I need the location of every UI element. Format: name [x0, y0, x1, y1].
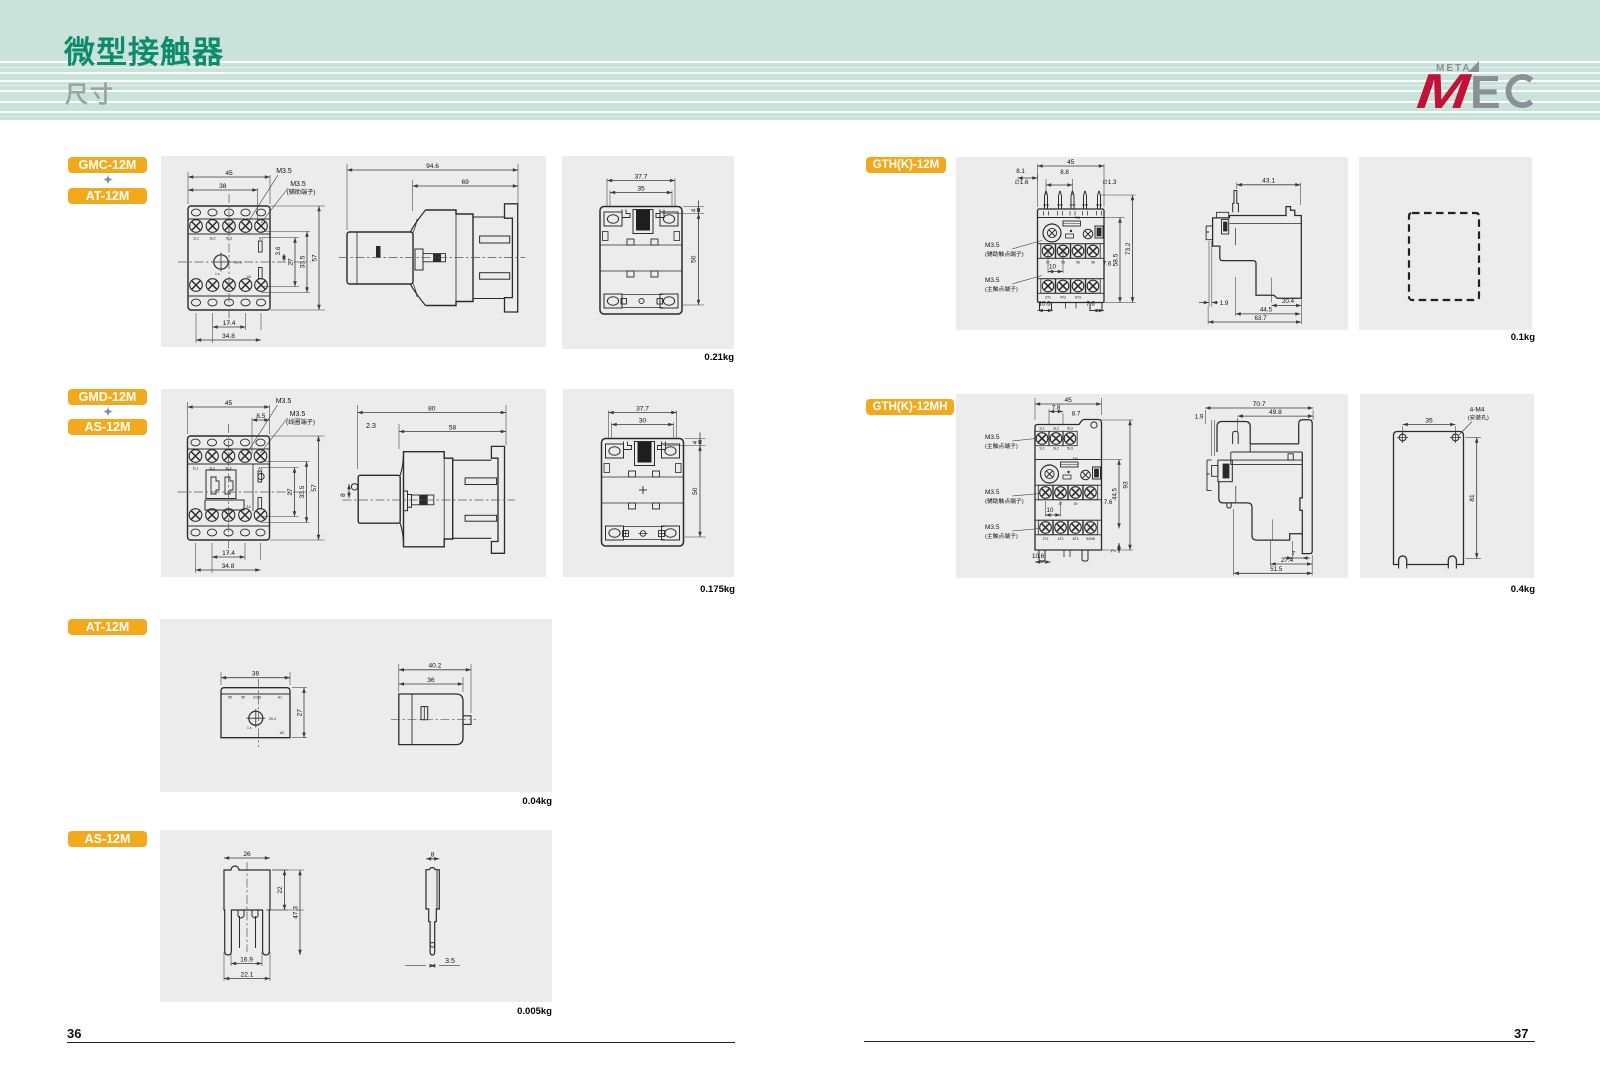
svg-text:45: 45	[1067, 159, 1075, 166]
svg-text:1L1: 1L1	[193, 237, 199, 241]
svg-text:10: 10	[1047, 507, 1054, 514]
svg-text:49.8: 49.8	[1269, 409, 1282, 416]
svg-text:6T3: 6T3	[1075, 296, 1081, 300]
svg-text:37.7: 37.7	[636, 405, 649, 412]
svg-text:TM: TM	[1075, 216, 1080, 220]
svg-text:20.4: 20.4	[1282, 298, 1295, 305]
svg-text:98: 98	[1091, 261, 1095, 265]
svg-text:(主触点端子): (主触点端子)	[985, 442, 1018, 450]
svg-text:M3-6: M3-6	[234, 261, 242, 265]
svg-text:M3.5: M3.5	[290, 181, 306, 188]
svg-text:(辅助触点端子): (辅助触点端子)	[985, 497, 1024, 505]
svg-text:38: 38	[252, 671, 260, 678]
svg-text:A1: A1	[259, 237, 263, 241]
svg-text:22.1: 22.1	[241, 971, 254, 978]
svg-text:63.7: 63.7	[1254, 315, 1267, 322]
svg-text:A1: A1	[258, 467, 262, 471]
svg-text:7.6: 7.6	[1086, 301, 1095, 308]
svg-text:3.6: 3.6	[275, 246, 282, 255]
svg-text:57: 57	[311, 484, 318, 492]
svg-text:M: M	[1414, 65, 1473, 116]
svg-text:∅1.6: ∅1.6	[1015, 179, 1030, 186]
svg-text:22: 22	[277, 886, 284, 894]
svg-text:35: 35	[1425, 417, 1433, 424]
svg-text:M3.5: M3.5	[290, 411, 306, 418]
svg-text:34.8: 34.8	[222, 333, 235, 340]
svg-text:16.9: 16.9	[240, 956, 253, 963]
svg-text:70.7: 70.7	[1253, 401, 1266, 408]
svg-text:M3.5: M3.5	[985, 524, 1000, 531]
svg-text:M3.5: M3.5	[985, 277, 1000, 284]
svg-text:1L1: 1L1	[1039, 447, 1045, 451]
svg-text:3.5: 3.5	[445, 958, 455, 965]
svg-text:44.5: 44.5	[1260, 307, 1273, 314]
svg-text:8.8: 8.8	[1060, 169, 1069, 176]
svg-text:10.6: 10.6	[1039, 301, 1052, 308]
svg-text:∅1.3: ∅1.3	[1103, 179, 1118, 186]
svg-text:80: 80	[428, 405, 436, 412]
svg-text:3L2: 3L2	[210, 237, 216, 241]
svg-text:(主触点端子): (主触点端子)	[985, 285, 1018, 293]
svg-text:M3.5: M3.5	[985, 242, 1000, 249]
svg-text:36: 36	[427, 677, 435, 684]
svg-text:A2: A2	[246, 505, 250, 509]
svg-text:95: 95	[228, 696, 232, 700]
svg-text:96: 96	[1076, 261, 1080, 265]
svg-text:45: 45	[225, 170, 233, 177]
svg-text:45: 45	[225, 400, 233, 407]
svg-text:1 s: 1 s	[247, 726, 252, 730]
svg-text:3L2: 3L2	[1053, 427, 1059, 431]
svg-text:E: E	[1470, 66, 1501, 116]
svg-text:94/98: 94/98	[1086, 537, 1095, 541]
svg-text:44.5: 44.5	[1113, 488, 1119, 500]
svg-text:COM: COM	[253, 696, 261, 700]
svg-text:4: 4	[692, 440, 699, 444]
svg-text:7: 7	[1111, 549, 1118, 553]
svg-text:8.1: 8.1	[1016, 168, 1025, 175]
svg-text:94.6: 94.6	[426, 163, 439, 170]
svg-text:3L2: 3L2	[1053, 447, 1059, 451]
svg-text:27.4: 27.4	[1281, 557, 1294, 564]
svg-text:5L3: 5L3	[1067, 447, 1073, 451]
svg-text:43.1: 43.1	[1262, 178, 1275, 185]
svg-text:45: 45	[1065, 397, 1073, 404]
svg-text:10.6: 10.6	[1032, 553, 1045, 560]
svg-text:51.5: 51.5	[1270, 566, 1283, 573]
svg-text:A2: A2	[280, 731, 284, 735]
svg-text:47.3: 47.3	[293, 906, 300, 919]
svg-text:26: 26	[243, 851, 251, 858]
svg-text:2.3: 2.3	[366, 423, 376, 430]
svg-text:49: 49	[1074, 502, 1078, 506]
svg-text:8: 8	[431, 852, 435, 859]
svg-text:95: 95	[241, 696, 245, 700]
svg-text:7.8: 7.8	[1052, 405, 1061, 412]
svg-text:7.6: 7.6	[1103, 261, 1112, 268]
svg-text:35: 35	[637, 185, 645, 192]
svg-text:38: 38	[219, 183, 227, 190]
svg-text:8.7: 8.7	[1072, 411, 1081, 418]
svg-text:69: 69	[462, 179, 470, 186]
svg-text:(主触点端子): (主触点端子)	[985, 532, 1018, 540]
svg-text:10: 10	[1049, 264, 1056, 271]
svg-text:30: 30	[639, 417, 647, 424]
svg-text:7.6: 7.6	[1104, 499, 1113, 506]
svg-text:(安装孔): (安装孔)	[1468, 414, 1489, 422]
svg-text:4-M4: 4-M4	[1470, 407, 1485, 414]
svg-text:TM: TM	[1072, 457, 1077, 461]
svg-text:A2: A2	[247, 275, 251, 279]
svg-text:(辅助触点端子): (辅助触点端子)	[985, 250, 1024, 258]
svg-text:50: 50	[691, 255, 698, 263]
svg-text:2T1: 2T1	[1043, 537, 1049, 541]
svg-text:81: 81	[1469, 494, 1476, 502]
svg-text:M3.5: M3.5	[276, 398, 292, 405]
svg-text:4T2: 4T2	[1058, 537, 1064, 541]
svg-text:8: 8	[340, 493, 347, 497]
svg-text:1.9: 1.9	[1195, 414, 1204, 421]
svg-text:1 s: 1 s	[215, 272, 220, 276]
svg-text:34.8: 34.8	[222, 563, 235, 570]
svg-text:8.5: 8.5	[256, 413, 265, 420]
svg-text:27: 27	[297, 709, 304, 717]
svg-text:20-4: 20-4	[269, 717, 276, 721]
svg-text:A1: A1	[278, 696, 282, 700]
svg-text:4: 4	[691, 208, 698, 212]
svg-text:73.2: 73.2	[1125, 242, 1132, 255]
svg-text:M3.5: M3.5	[985, 434, 1000, 441]
svg-text:1.9: 1.9	[1220, 300, 1229, 307]
svg-text:2T1: 2T1	[1045, 296, 1051, 300]
svg-text:M3.5: M3.5	[276, 168, 292, 175]
svg-text:4T2: 4T2	[1060, 296, 1066, 300]
svg-text:57: 57	[312, 254, 319, 262]
svg-text:(线圈端子): (线圈端子)	[286, 418, 315, 426]
svg-text:(辅助端子): (辅助端子)	[287, 188, 316, 196]
svg-text:1L1: 1L1	[193, 467, 199, 471]
svg-text:37.7: 37.7	[635, 173, 648, 180]
svg-text:6T3: 6T3	[1073, 537, 1079, 541]
svg-text:M3.5: M3.5	[985, 489, 1000, 496]
svg-text:93: 93	[1123, 481, 1130, 489]
svg-text:58: 58	[449, 424, 457, 431]
svg-text:58.5: 58.5	[1113, 253, 1120, 266]
svg-text:1L1: 1L1	[1039, 427, 1045, 431]
svg-text:50: 50	[692, 487, 699, 495]
svg-text:5L3: 5L3	[1067, 427, 1073, 431]
svg-text:40.2: 40.2	[428, 663, 441, 670]
